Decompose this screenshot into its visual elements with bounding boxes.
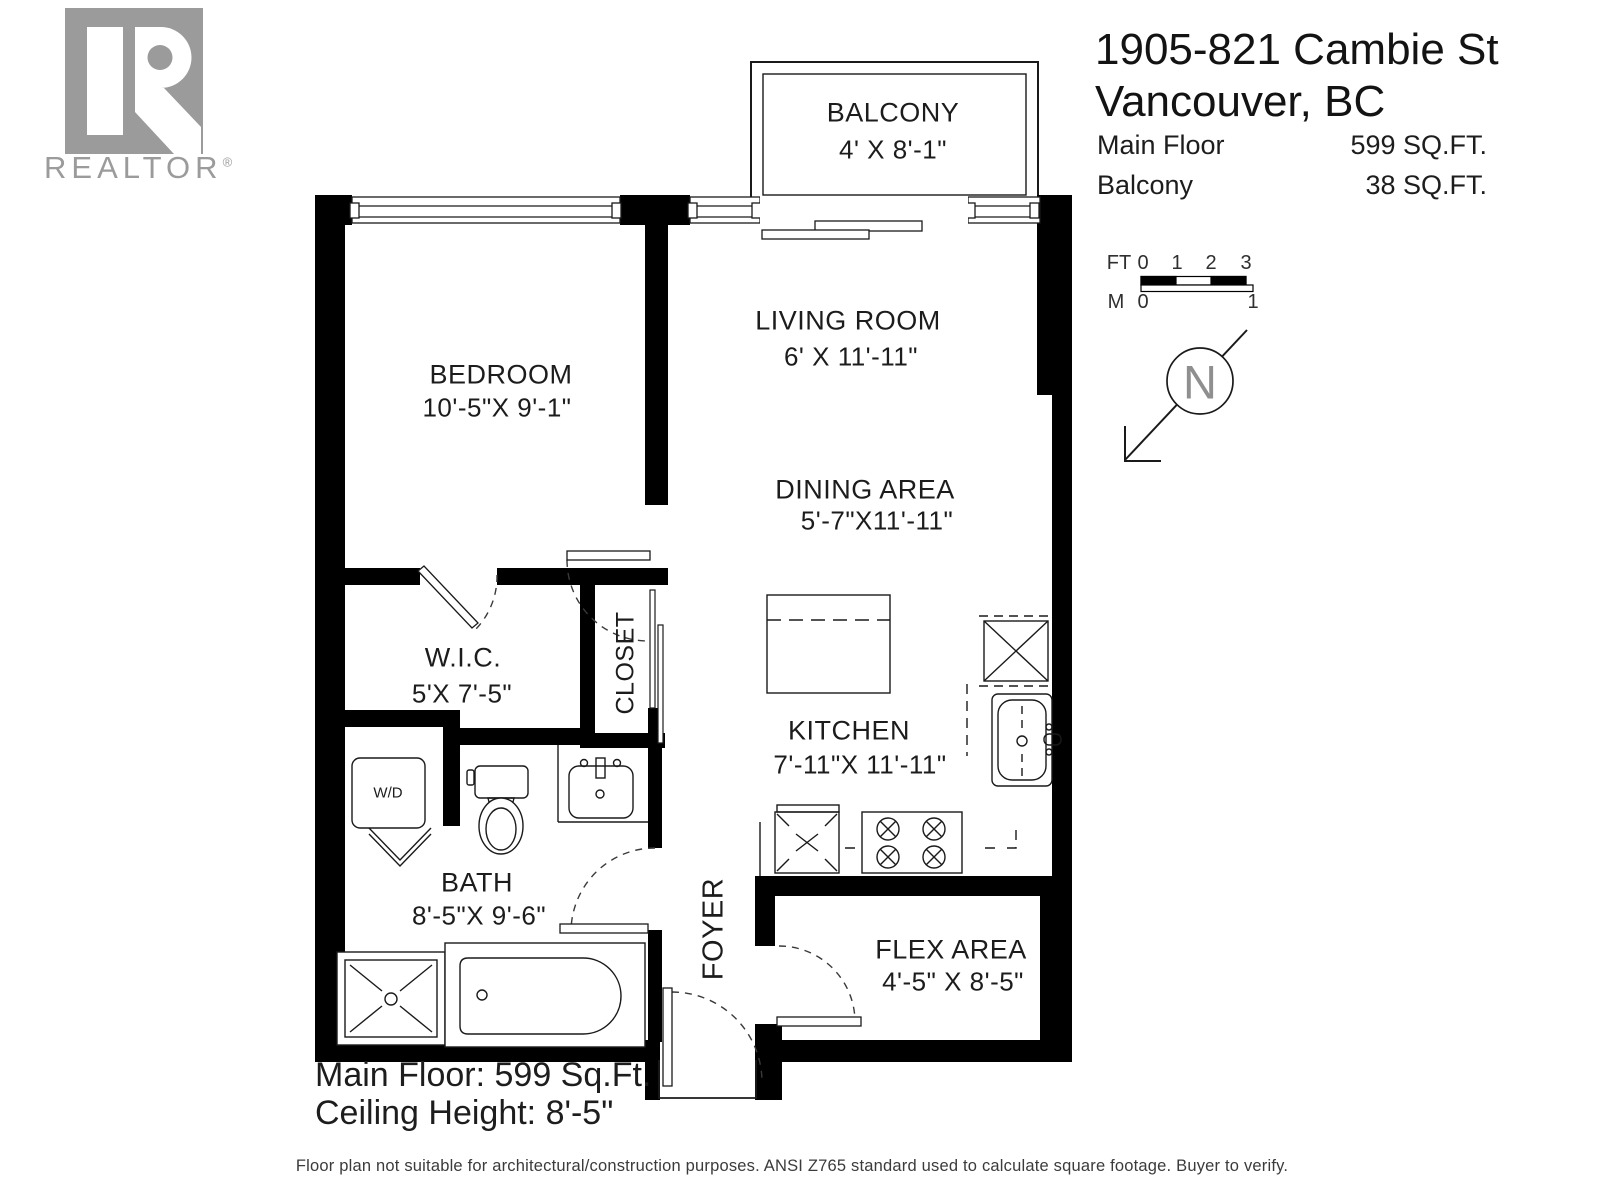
scale-m-tick: 0 — [1137, 291, 1148, 314]
bath-sink-icon — [558, 745, 648, 822]
scale-m-label: M — [1108, 291, 1125, 314]
room-label-bath: BATH — [441, 868, 513, 899]
stove-icon — [862, 812, 962, 873]
room-label-kitchen: KITCHEN — [788, 716, 910, 747]
registered-mark: ® — [223, 155, 233, 170]
washer-dryer-label: W/D — [373, 785, 402, 802]
balcony-structure — [751, 62, 1038, 203]
room-label-wic: W.I.C. — [425, 643, 502, 674]
room-label-balcony: BALCONY — [827, 98, 960, 129]
bedroom-window — [350, 197, 621, 223]
living-window — [688, 197, 761, 223]
realtor-logo-icon — [65, 8, 203, 154]
scale-m-tick: 1 — [1247, 291, 1258, 314]
realtor-wordmark: REALTOR — [44, 150, 223, 185]
scale-ft-tick: 3 — [1240, 252, 1251, 275]
area-label: Balcony — [1097, 170, 1193, 201]
room-label-living-room: LIVING ROOM — [755, 306, 941, 337]
burners — [877, 818, 945, 868]
summary-ceiling-height: Ceiling Height: 8'-5" — [315, 1094, 651, 1132]
room-dims-bath: 8'-5"X 9'-6" — [412, 901, 546, 932]
bathtub-icon — [445, 943, 645, 1047]
floorplan-page: REALTOR® 1905-821 Cambie St Vancouver, B… — [0, 0, 1600, 1200]
room-dims-dining-area: 5'-7"X11'-11" — [801, 506, 953, 537]
room-dims-kitchen: 7'-11"X 11'-11" — [773, 750, 946, 781]
scale-ft-label: FT — [1107, 252, 1131, 275]
area-label: Main Floor — [1097, 130, 1225, 161]
entry-vestibule — [659, 1060, 756, 1098]
room-dims-bedroom: 10'-5"X 9'-1" — [422, 393, 571, 424]
summary-main-floor: Main Floor: 599 Sq.Ft. — [315, 1056, 651, 1094]
room-dims-wic: 5'X 7'-5" — [412, 679, 512, 710]
room-label-bedroom: BEDROOM — [429, 360, 572, 391]
area-value: 599 SQ.FT. — [1350, 130, 1487, 161]
room-label-foyer: FOYER — [698, 878, 731, 980]
dining-window — [966, 197, 1040, 223]
washer-dryer-icon — [352, 758, 431, 866]
floor-summary: Main Floor: 599 Sq.Ft. Ceiling Height: 8… — [315, 1056, 651, 1132]
oven-icon — [775, 805, 839, 873]
scale-ft-tick: 0 — [1137, 252, 1148, 275]
balcony-sliding-door — [760, 196, 968, 239]
scale-ft-tick: 1 — [1171, 252, 1182, 275]
compass-north-letter: N — [1183, 355, 1217, 410]
room-dims-balcony: 4' X 8'-1" — [839, 135, 947, 166]
windows — [350, 196, 1040, 239]
kitchen-island — [767, 595, 890, 693]
page-title: 1905-821 Cambie St Vancouver, BC — [1095, 24, 1499, 128]
area-row-balcony: Balcony 38 SQ.FT. — [1097, 170, 1487, 201]
kitchen-sink-icon — [992, 694, 1061, 786]
disclaimer-text: Floor plan not suitable for architectura… — [296, 1157, 1288, 1176]
address-line-2: Vancouver, BC — [1095, 76, 1499, 128]
realtor-logo-text: REALTOR® — [44, 150, 232, 186]
area-value: 38 SQ.FT. — [1365, 170, 1487, 201]
room-dims-living-room: 6' X 11'-11" — [784, 342, 918, 373]
address-line-1: 1905-821 Cambie St — [1095, 24, 1499, 76]
shower-icon — [337, 952, 445, 1045]
room-label-dining-area: DINING AREA — [775, 475, 955, 506]
fridge-icon — [979, 616, 1051, 686]
scale-ft-tick: 2 — [1205, 252, 1216, 275]
scale-bar-graphic — [1141, 277, 1253, 292]
area-row-main-floor: Main Floor 599 SQ.FT. — [1097, 130, 1487, 161]
room-dims-flex-area: 4'-5" X 8'-5" — [882, 967, 1024, 998]
toilet-icon — [467, 766, 528, 854]
room-label-closet: CLOSET — [612, 611, 641, 714]
room-label-flex-area: FLEX AREA — [875, 935, 1027, 966]
